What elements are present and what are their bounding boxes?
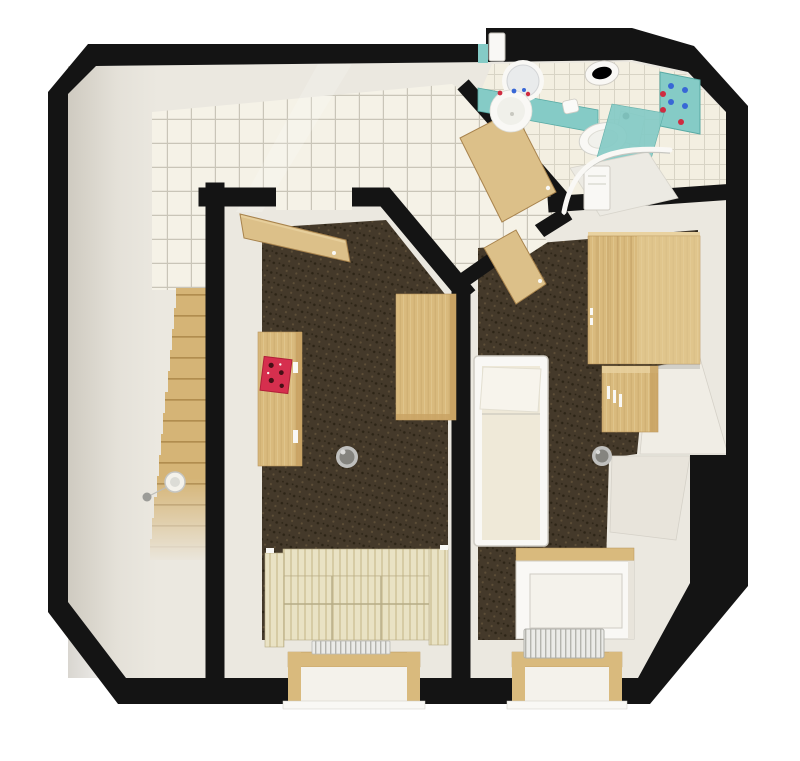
toiletry-bottle-red xyxy=(526,92,530,96)
bin-highlight xyxy=(341,450,346,455)
bottle-blue xyxy=(668,83,674,89)
sideboard-edge xyxy=(296,332,302,466)
magazine-cover xyxy=(260,356,292,393)
tap-red xyxy=(498,91,503,96)
lamp-bulb xyxy=(170,477,180,487)
sofa-armrest-right xyxy=(429,549,448,645)
window-outer-sill xyxy=(507,701,627,709)
window-bay-side xyxy=(288,652,301,702)
window-bay-floor xyxy=(301,667,407,703)
window-bay-side xyxy=(407,652,420,702)
wardrobe-handle xyxy=(590,308,593,315)
sofa-backrest xyxy=(283,549,430,576)
chest-body xyxy=(602,366,658,432)
chest-top-edge xyxy=(602,366,658,373)
lamp-knob xyxy=(143,493,152,502)
living-window-bay xyxy=(283,652,425,709)
bottle-blue xyxy=(682,103,688,109)
sloped-ceiling-panel xyxy=(610,456,690,540)
bedroom-window-bay xyxy=(507,652,627,709)
bathroom-door-handle xyxy=(546,186,550,190)
wardrobe-handle xyxy=(590,318,593,325)
bathroom-top-door xyxy=(489,33,505,61)
living-door-opening xyxy=(276,186,352,210)
sideboard-handle xyxy=(293,362,298,373)
chest-handle xyxy=(613,390,616,403)
bottle-red xyxy=(660,107,666,113)
bedroom-radiator xyxy=(524,629,604,658)
hallway-floor-shading xyxy=(68,66,158,678)
magazine xyxy=(260,356,292,393)
dresser-side-shade xyxy=(628,561,634,639)
living-table xyxy=(396,294,456,420)
window-bay-floor xyxy=(525,667,609,703)
chest-handle xyxy=(619,394,622,407)
chest-handle xyxy=(607,386,610,399)
bottle-blue xyxy=(668,99,674,105)
sofa-corner-cap xyxy=(440,545,448,550)
sideboard xyxy=(258,332,302,466)
sideboard-handle xyxy=(293,430,298,443)
dresser-panel xyxy=(530,574,622,628)
bedroom-waste-bin xyxy=(592,446,612,466)
table-edge xyxy=(450,294,456,420)
bin-highlight xyxy=(596,450,600,454)
table-top xyxy=(396,294,456,420)
sofa xyxy=(265,545,448,647)
toiletry-cabinet xyxy=(660,72,700,134)
bathroom-top-wall-panel xyxy=(478,44,488,63)
sofa-corner-cap xyxy=(266,548,274,553)
living-radiator xyxy=(312,641,390,654)
bedroom-dresser xyxy=(516,548,634,639)
table-edge xyxy=(396,414,456,420)
chest-of-drawers xyxy=(602,366,658,432)
living-waste-bin xyxy=(336,446,358,468)
wardrobe xyxy=(588,232,700,369)
wardrobe-top-face xyxy=(637,236,700,364)
basin-drain xyxy=(510,112,514,116)
bottle-red xyxy=(660,91,666,97)
bed xyxy=(474,356,548,546)
sofa-armrest-left xyxy=(265,553,284,647)
basin-bowl xyxy=(497,97,525,125)
bedroom-door-handle xyxy=(538,279,542,283)
floorplan-page: 3D rendered floor plan, top-down view of… xyxy=(0,0,800,761)
window-outer-sill xyxy=(283,701,425,709)
sofa-seat xyxy=(284,576,429,640)
bottle-blue xyxy=(682,87,688,93)
bed-pillow xyxy=(480,367,541,412)
toiletry-bottle-blue xyxy=(522,88,526,92)
living-door-handle xyxy=(332,251,336,255)
toilet-paper-roll xyxy=(562,98,579,114)
sideboard-top xyxy=(258,332,302,466)
chest-side xyxy=(650,366,658,432)
dresser-wood-top xyxy=(516,548,634,561)
window-bay-side xyxy=(609,652,622,702)
floorplan-render: 3D rendered floor plan, top-down view of… xyxy=(0,0,800,761)
window-bay-side xyxy=(512,652,525,702)
shower-column xyxy=(584,166,610,210)
tap-blue xyxy=(512,89,517,94)
bottle-red xyxy=(678,119,684,125)
